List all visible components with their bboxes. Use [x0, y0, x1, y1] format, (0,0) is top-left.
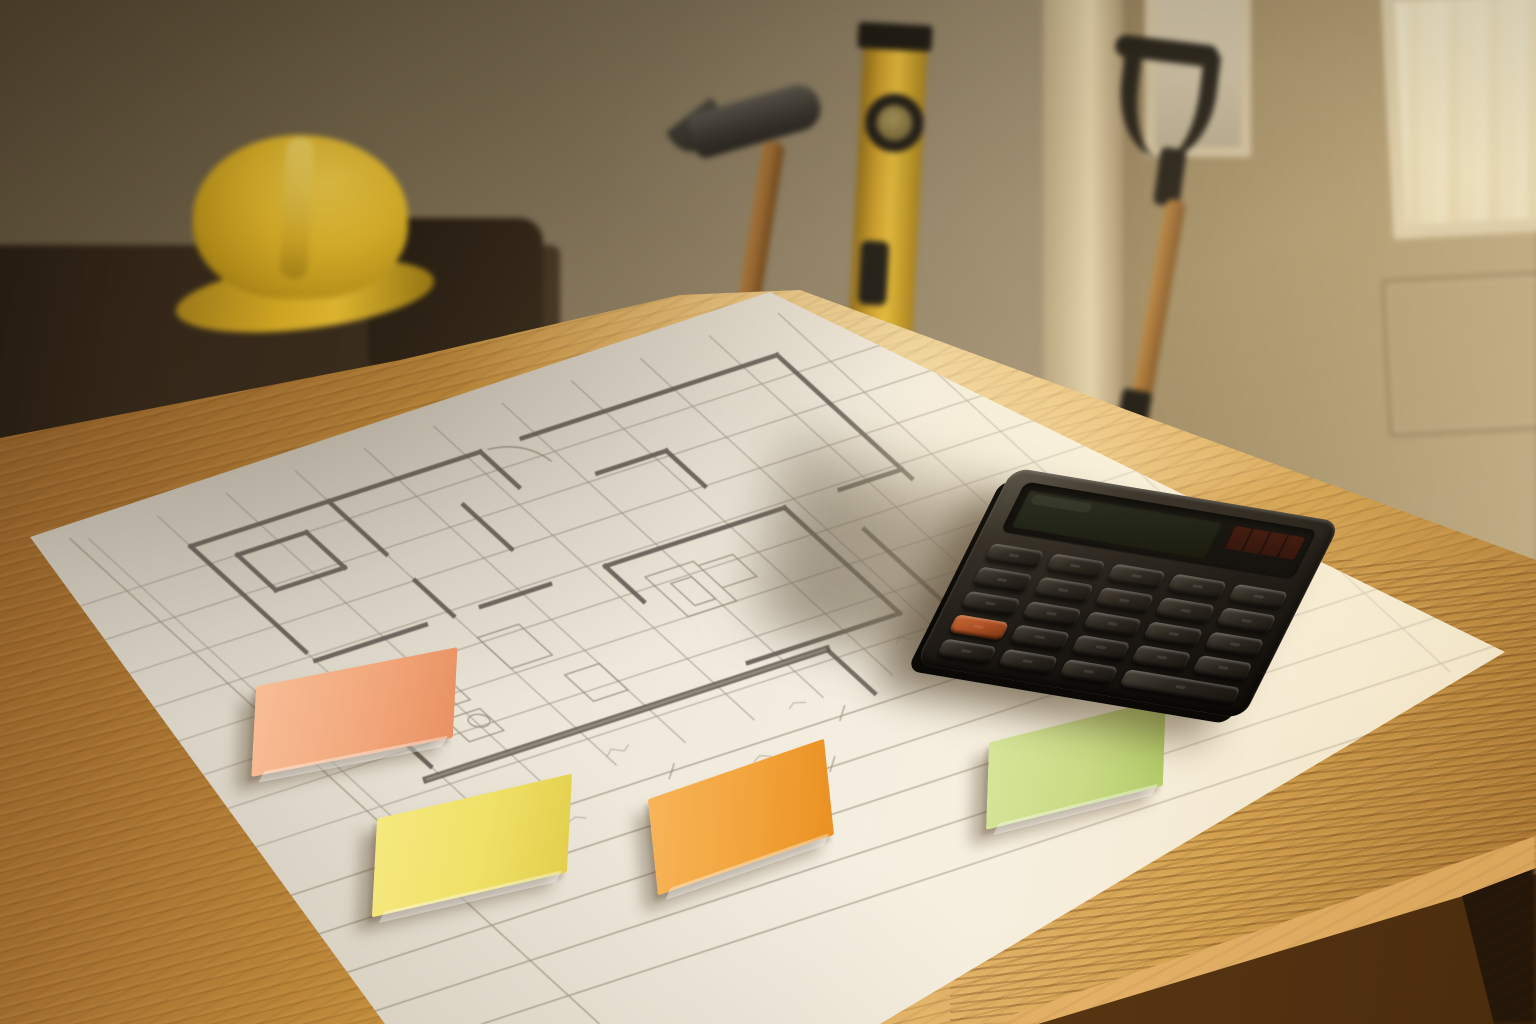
calculator-key — [1009, 624, 1070, 650]
hard-hat — [175, 135, 435, 335]
calculator-key — [1094, 587, 1155, 613]
calculator-key — [1070, 635, 1131, 661]
calculator-key — [1131, 645, 1192, 671]
calculator-key — [1192, 655, 1253, 681]
calculator-key — [1216, 608, 1277, 634]
door-glass-pane-large — [1381, 0, 1536, 239]
calculator-key — [1033, 577, 1094, 603]
construction-desk-photo: Sunlit wooden desk with a hand-drawn arc… — [0, 0, 1536, 1024]
calculator-key — [1143, 621, 1204, 647]
door-panel — [1381, 271, 1536, 438]
calculator-key — [1155, 597, 1216, 623]
calculator-key — [937, 638, 998, 664]
calculator-key — [1059, 658, 1120, 684]
calculator-accent-key — [949, 614, 1010, 640]
calculator-key — [1106, 563, 1167, 589]
calculator-key — [1082, 611, 1143, 637]
spirit-level-cap — [857, 22, 932, 52]
spirit-level-handle-slot — [858, 240, 889, 305]
calculator-key — [998, 648, 1059, 674]
calculator-key — [972, 567, 1033, 593]
shovel-shaft — [1128, 198, 1187, 422]
shovel-d-handle — [1113, 45, 1221, 164]
calculator-key — [984, 543, 1045, 569]
calculator-key — [1021, 601, 1082, 627]
hammer-head — [686, 80, 826, 161]
calculator-solar-panel — [1223, 526, 1305, 560]
calculator-key — [1045, 553, 1106, 579]
spirit-level — [834, 27, 955, 352]
calculator-screen — [1011, 489, 1223, 559]
calculator-key — [1204, 631, 1265, 657]
calculator-key — [1167, 574, 1228, 600]
shovel — [1085, 30, 1255, 430]
calculator-key — [960, 591, 1021, 617]
calculator-key — [1228, 584, 1289, 610]
